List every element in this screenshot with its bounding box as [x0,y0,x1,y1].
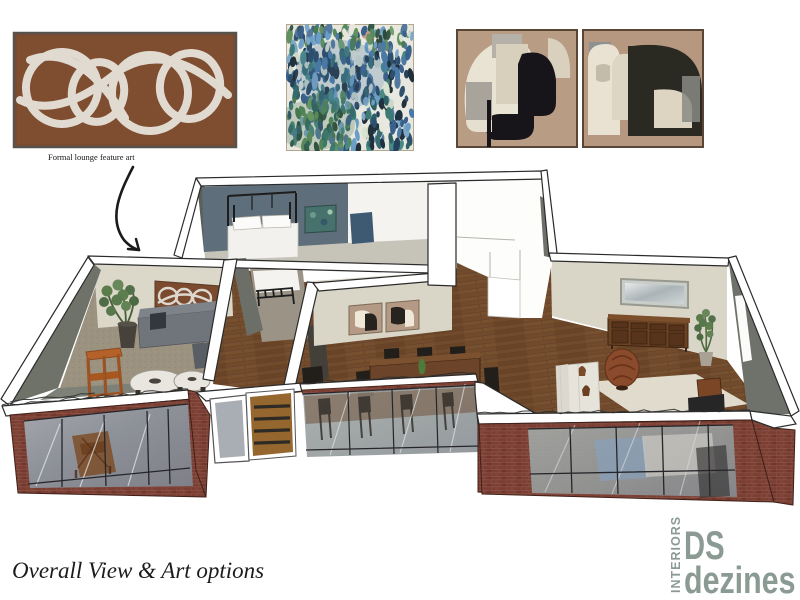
svg-text:INTERIORS: INTERIORS [669,516,683,593]
svg-text:dezines: dezines [684,560,795,600]
svg-text:Formal lounge feature art: Formal lounge feature art [48,152,135,162]
svg-text:Overall View & Art options: Overall View & Art options [12,558,264,583]
